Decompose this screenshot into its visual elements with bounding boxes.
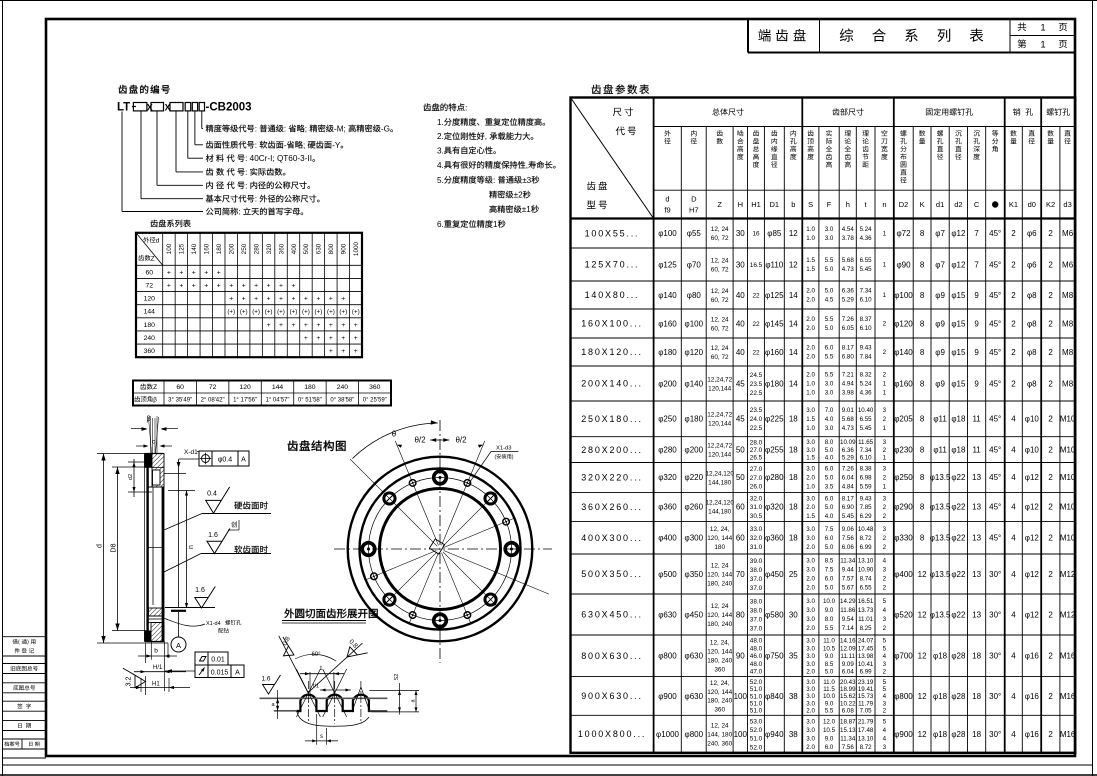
svg-text:2: 2 — [883, 513, 887, 520]
svg-text:40: 40 — [736, 291, 745, 300]
svg-text:180: 180 — [714, 544, 725, 551]
svg-text::: : — [238, 208, 240, 217]
svg-text:Z: Z — [151, 255, 155, 262]
svg-text:38.0: 38.0 — [750, 607, 763, 614]
svg-text:5.0: 5.0 — [825, 475, 834, 482]
svg-text:φ700: φ700 — [894, 652, 913, 661]
svg-text:2.0: 2.0 — [806, 625, 815, 632]
svg-text:5.45: 5.45 — [860, 425, 873, 432]
svg-text:M8: M8 — [1062, 291, 1074, 300]
svg-text:θ/2: θ/2 — [414, 436, 426, 445]
svg-text:11.11: 11.11 — [841, 653, 856, 660]
svg-text:144,180: 144,180 — [708, 479, 732, 486]
svg-text:1.5: 1.5 — [806, 416, 815, 423]
svg-text:φ22: φ22 — [951, 503, 966, 512]
svg-text:(: ( — [18, 640, 20, 646]
svg-text:1: 1 — [883, 292, 887, 299]
svg-text:21.79: 21.79 — [858, 718, 874, 725]
svg-text:φ450: φ450 — [685, 610, 704, 619]
svg-text:M6: M6 — [1062, 229, 1074, 238]
svg-text:D: D — [691, 195, 697, 204]
svg-text:(+): (+) — [339, 309, 347, 316]
svg-text:A: A — [241, 456, 246, 463]
svg-text:A: A — [235, 670, 240, 677]
svg-text::: : — [255, 141, 257, 150]
svg-text:120,144: 120,144 — [708, 385, 732, 392]
svg-text:3.0: 3.0 — [825, 226, 834, 233]
svg-text:1: 1 — [883, 454, 887, 461]
svg-text:+: + — [279, 296, 283, 303]
svg-text:θ: θ — [392, 429, 397, 438]
svg-text:+: + — [316, 335, 320, 342]
svg-text:630X450...: 630X450... — [581, 610, 643, 620]
svg-text:40: 40 — [736, 319, 745, 328]
svg-text:h: h — [846, 200, 850, 209]
svg-text:φ80: φ80 — [687, 291, 702, 300]
svg-text:11.5: 11.5 — [823, 686, 835, 693]
svg-text:120,144: 120,144 — [708, 451, 732, 458]
svg-text:9.0: 9.0 — [825, 607, 834, 614]
svg-text:+: + — [329, 348, 333, 355]
svg-text:38.0: 38.0 — [750, 598, 763, 605]
svg-text:3.0: 3.0 — [806, 686, 815, 693]
svg-text:φ12: φ12 — [951, 260, 966, 269]
svg-text:360: 360 — [144, 348, 156, 355]
svg-text:3.0: 3.0 — [806, 616, 815, 623]
svg-text:45°: 45° — [989, 415, 1001, 424]
svg-text:φ55: φ55 — [687, 229, 702, 238]
svg-text:24.0: 24.0 — [750, 416, 763, 423]
svg-text:900: 900 — [341, 243, 348, 254]
svg-text:12,24,72: 12,24,72 — [707, 442, 732, 449]
svg-text:3.0: 3.0 — [806, 439, 815, 446]
svg-text:144: 144 — [144, 309, 156, 316]
svg-text:630: 630 — [316, 243, 323, 254]
svg-text:φ225: φ225 — [765, 415, 784, 424]
svg-text:6.10: 6.10 — [860, 325, 873, 332]
svg-text:X1-d3: X1-d3 — [496, 446, 511, 452]
svg-text:18: 18 — [789, 445, 798, 454]
svg-text:2: 2 — [1048, 503, 1053, 512]
svg-text:2: 2 — [1011, 319, 1016, 328]
svg-text:3: 3 — [883, 526, 887, 533]
svg-text:: 40Cr-I; QT60-3-II: : 40Cr-I; QT60-3-II — [245, 154, 312, 163]
svg-text:10.22: 10.22 — [840, 700, 856, 707]
svg-text:,: , — [526, 161, 528, 170]
svg-text:2: 2 — [883, 416, 887, 423]
svg-text:10.40: 10.40 — [858, 407, 874, 414]
svg-text:φ160: φ160 — [765, 348, 784, 357]
svg-text:5.0: 5.0 — [825, 544, 834, 551]
svg-text:51.0: 51.0 — [750, 708, 763, 715]
svg-text:70: 70 — [736, 570, 745, 579]
svg-text:+: + — [167, 282, 171, 289]
svg-text:φ28: φ28 — [951, 730, 966, 739]
svg-text::: : — [245, 168, 247, 177]
svg-text:φ22: φ22 — [951, 570, 966, 579]
svg-text:φ16: φ16 — [1025, 730, 1040, 739]
svg-text:1: 1 — [883, 390, 887, 397]
svg-text:φ18: φ18 — [951, 415, 966, 424]
svg-text:120: 120 — [239, 384, 251, 391]
svg-text:+: + — [304, 322, 308, 329]
svg-text:31.0: 31.0 — [750, 504, 763, 511]
svg-text:22.5: 22.5 — [750, 425, 763, 432]
svg-text:30: 30 — [736, 229, 745, 238]
svg-text:100: 100 — [734, 692, 748, 701]
svg-text:8.17: 8.17 — [842, 496, 855, 503]
svg-text:11.86: 11.86 — [840, 607, 856, 614]
svg-text:3.98: 3.98 — [842, 390, 855, 397]
svg-text:;: ; — [303, 141, 305, 150]
svg-text:X: X — [165, 102, 171, 112]
svg-text:+: + — [229, 296, 233, 303]
svg-text:13: 13 — [972, 473, 981, 482]
svg-text:48.0: 48.0 — [750, 638, 763, 645]
svg-text:5.5: 5.5 — [825, 257, 834, 264]
svg-text:φ200: φ200 — [658, 379, 677, 388]
svg-text:8.74: 8.74 — [860, 576, 873, 583]
svg-text:4: 4 — [1011, 570, 1016, 579]
svg-text:120, 144: 120, 144 — [707, 649, 732, 656]
svg-text:φ12: φ12 — [951, 229, 966, 238]
svg-text:φ22: φ22 — [951, 610, 966, 619]
svg-text:φ840: φ840 — [765, 692, 784, 701]
svg-text:2.0: 2.0 — [806, 585, 815, 592]
svg-text:120, 144: 120, 144 — [707, 535, 732, 542]
svg-text:4: 4 — [883, 653, 887, 660]
svg-text:5.24: 5.24 — [860, 381, 873, 388]
svg-text:18: 18 — [789, 415, 798, 424]
svg-text:0° 25'59": 0° 25'59" — [363, 398, 387, 404]
svg-text:4.: 4. — [437, 161, 444, 170]
svg-text:180, 240: 180, 240 — [707, 658, 732, 665]
svg-text:φ320: φ320 — [658, 473, 677, 482]
svg-text:S2: S2 — [394, 674, 400, 681]
svg-text:(+): (+) — [277, 309, 285, 316]
svg-text:M16: M16 — [1060, 692, 1076, 701]
svg-text:5.0: 5.0 — [825, 325, 834, 332]
svg-text:φ13.5: φ13.5 — [930, 534, 951, 543]
svg-text:11.79: 11.79 — [858, 700, 874, 707]
svg-text:+: + — [292, 322, 296, 329]
svg-text:φ6: φ6 — [1027, 260, 1037, 269]
svg-text:7.14: 7.14 — [842, 625, 855, 632]
svg-text:+: + — [229, 282, 233, 289]
svg-text:51.0: 51.0 — [750, 686, 763, 693]
svg-text:7.34: 7.34 — [860, 447, 873, 454]
svg-text:45°: 45° — [989, 379, 1001, 388]
svg-text:3° 35'49": 3° 35'49" — [168, 398, 192, 404]
svg-text:C: C — [974, 200, 980, 209]
svg-text:4.36: 4.36 — [860, 390, 873, 397]
svg-text:20.43: 20.43 — [840, 679, 856, 686]
svg-text:4: 4 — [1011, 534, 1016, 543]
svg-text:10.48: 10.48 — [858, 526, 874, 533]
svg-text:2: 2 — [1048, 348, 1053, 357]
svg-text:240, 360: 240, 360 — [707, 740, 732, 747]
svg-text:320X220...: 320X220... — [581, 473, 643, 483]
svg-text:(: ( — [495, 454, 497, 460]
svg-text:3.0: 3.0 — [806, 598, 815, 605]
svg-text:+: + — [329, 296, 333, 303]
svg-text:100: 100 — [166, 243, 173, 254]
svg-text:φ7: φ7 — [935, 229, 945, 238]
svg-text:22.5: 22.5 — [750, 390, 763, 397]
svg-text:+: + — [217, 282, 221, 289]
svg-text:46.0: 46.0 — [750, 653, 763, 660]
svg-text:90: 90 — [736, 652, 745, 661]
svg-text:14: 14 — [789, 379, 798, 388]
svg-text:1: 1 — [883, 425, 887, 432]
svg-text:φ72: φ72 — [896, 229, 911, 238]
svg-text:3.0: 3.0 — [806, 407, 815, 414]
svg-text:Z: Z — [717, 200, 722, 209]
svg-text:25: 25 — [789, 570, 798, 579]
svg-text:50: 50 — [736, 445, 745, 454]
svg-text:+: + — [167, 269, 171, 276]
svg-text:4.73: 4.73 — [842, 425, 855, 432]
svg-text:6.99: 6.99 — [860, 669, 873, 676]
svg-text:φ900: φ900 — [894, 730, 913, 739]
svg-text:8: 8 — [920, 319, 925, 328]
svg-text:2: 2 — [1011, 260, 1016, 269]
svg-text:+: + — [316, 322, 320, 329]
svg-text:52.0: 52.0 — [750, 727, 763, 734]
svg-text:2.0: 2.0 — [806, 354, 815, 361]
svg-text:45: 45 — [736, 415, 745, 424]
svg-text:φ12: φ12 — [1025, 610, 1040, 619]
svg-text:50: 50 — [736, 473, 745, 482]
svg-text:200X140...: 200X140... — [581, 379, 643, 389]
svg-text:125: 125 — [179, 243, 186, 254]
svg-text:6.36: 6.36 — [842, 447, 855, 454]
svg-text:2.0: 2.0 — [806, 669, 815, 676]
svg-text:+: + — [179, 269, 183, 276]
svg-text:12, 24: 12, 24 — [711, 288, 729, 295]
svg-text:60: 60 — [736, 534, 745, 543]
svg-text:3.0: 3.0 — [806, 526, 815, 533]
svg-text:M10: M10 — [1060, 473, 1076, 482]
svg-text:2: 2 — [1011, 229, 1016, 238]
svg-text:5.29: 5.29 — [842, 297, 855, 304]
svg-text:5.0: 5.0 — [825, 504, 834, 511]
svg-text:(+): (+) — [302, 309, 310, 316]
svg-text:4: 4 — [883, 736, 887, 743]
svg-text:φ8: φ8 — [1027, 348, 1037, 357]
svg-text:18: 18 — [789, 534, 798, 543]
svg-text:4: 4 — [1011, 503, 1016, 512]
svg-text:D2: D2 — [899, 200, 909, 209]
svg-text:45°: 45° — [989, 260, 1001, 269]
svg-text:12: 12 — [918, 692, 927, 701]
svg-text:5.0: 5.0 — [825, 669, 834, 676]
svg-text:6.04: 6.04 — [842, 475, 855, 482]
svg-text:(+): (+) — [352, 309, 360, 316]
svg-text:12,24,120: 12,24,120 — [705, 500, 734, 507]
svg-text:8: 8 — [920, 260, 925, 269]
svg-text:4.0: 4.0 — [825, 416, 834, 423]
svg-text:72: 72 — [209, 384, 217, 391]
svg-text:3.0: 3.0 — [806, 447, 815, 454]
svg-text:5: 5 — [883, 718, 887, 725]
svg-text:2: 2 — [883, 576, 887, 583]
svg-text:3.0: 3.0 — [806, 558, 815, 565]
svg-text:3.: 3. — [437, 146, 444, 155]
svg-text:3.0: 3.0 — [825, 235, 834, 242]
svg-text:+: + — [354, 335, 358, 342]
svg-text:14: 14 — [789, 319, 798, 328]
svg-text:θ/2: θ/2 — [455, 436, 467, 445]
svg-text:6.55: 6.55 — [860, 585, 873, 592]
svg-text:45°: 45° — [989, 534, 1001, 543]
svg-text:360: 360 — [714, 667, 725, 674]
svg-text:6.08: 6.08 — [842, 708, 855, 715]
svg-text:2: 2 — [1048, 652, 1053, 661]
svg-text:400X300...: 400X300... — [581, 533, 643, 543]
svg-text:22: 22 — [752, 349, 760, 356]
svg-text:5.45: 5.45 — [860, 266, 873, 273]
svg-text:250X180...: 250X180... — [581, 414, 643, 424]
svg-text:24.07: 24.07 — [858, 638, 874, 645]
svg-text:9.43: 9.43 — [860, 496, 873, 503]
svg-text:360: 360 — [369, 384, 381, 391]
svg-text:9: 9 — [974, 379, 979, 388]
svg-text:7.84: 7.84 — [860, 354, 873, 361]
svg-text:φ180: φ180 — [685, 415, 704, 424]
svg-text:φ800: φ800 — [685, 730, 704, 739]
svg-text:φ180: φ180 — [765, 379, 784, 388]
svg-text:φ250: φ250 — [894, 473, 913, 482]
svg-text:30°: 30° — [989, 730, 1001, 739]
svg-text:11.01: 11.01 — [858, 616, 874, 623]
svg-text:φ140: φ140 — [658, 291, 677, 300]
svg-text:β: β — [153, 397, 157, 404]
svg-text:240: 240 — [337, 384, 349, 391]
svg-text:φ750: φ750 — [765, 652, 784, 661]
svg-text:9.0: 9.0 — [825, 653, 834, 660]
svg-text:1: 1 — [883, 484, 887, 491]
svg-text:160X100...: 160X100... — [581, 319, 643, 329]
svg-text:X-d1: X-d1 — [184, 449, 198, 456]
svg-text:280X200...: 280X200... — [581, 445, 643, 455]
svg-text:1: 1 — [1040, 23, 1045, 34]
svg-text:4.0: 4.0 — [825, 513, 834, 520]
svg-text:+: + — [279, 282, 283, 289]
svg-text:n: n — [882, 200, 886, 209]
svg-text:8: 8 — [920, 291, 925, 300]
svg-text:6.10: 6.10 — [860, 454, 873, 461]
svg-text:φ360: φ360 — [765, 534, 784, 543]
svg-text:φ450: φ450 — [765, 570, 784, 579]
svg-text:3: 3 — [883, 407, 887, 414]
svg-text:45: 45 — [736, 379, 745, 388]
svg-text:F: F — [827, 200, 832, 209]
svg-text:45°: 45° — [989, 348, 1001, 357]
svg-text:2: 2 — [1048, 229, 1053, 238]
svg-text:φ145: φ145 — [765, 319, 784, 328]
svg-text:φ1000: φ1000 — [656, 730, 680, 739]
svg-text:+: + — [329, 335, 333, 342]
svg-text:9.0: 9.0 — [825, 736, 834, 743]
svg-text:+: + — [304, 296, 308, 303]
svg-text:18: 18 — [789, 503, 798, 512]
svg-text:): ) — [27, 640, 29, 646]
svg-text:27.0: 27.0 — [750, 466, 763, 473]
svg-text:2.0: 2.0 — [806, 744, 815, 751]
svg-text:b: b — [791, 200, 795, 209]
svg-text:t: t — [320, 665, 322, 672]
svg-text:5.5: 5.5 — [825, 625, 834, 632]
svg-text:φ9: φ9 — [935, 291, 945, 300]
svg-text:8.0: 8.0 — [825, 439, 834, 446]
svg-text:7: 7 — [974, 260, 979, 269]
svg-text:M10: M10 — [1060, 534, 1076, 543]
svg-text:12.09: 12.09 — [840, 645, 856, 652]
svg-text:φ13.5: φ13.5 — [930, 473, 951, 482]
svg-text:0.01: 0.01 — [211, 657, 225, 664]
svg-text:18: 18 — [972, 730, 981, 739]
svg-text:360: 360 — [278, 243, 285, 254]
svg-text:φ16: φ16 — [1025, 652, 1040, 661]
svg-text:360X260...: 360X260... — [581, 502, 643, 512]
svg-text:5: 5 — [883, 645, 887, 652]
svg-text:φ300: φ300 — [685, 534, 704, 543]
svg-text:23.5: 23.5 — [750, 381, 763, 388]
svg-text:9: 9 — [974, 291, 979, 300]
svg-text:6.98: 6.98 — [860, 475, 873, 482]
svg-text:30°: 30° — [989, 570, 1001, 579]
svg-text:60, 72: 60, 72 — [711, 266, 729, 273]
svg-text:10.41: 10.41 — [858, 661, 874, 668]
svg-text:2: 2 — [1011, 348, 1016, 357]
svg-text:12, 24,: 12, 24, — [710, 680, 730, 687]
svg-text:φ900: φ900 — [658, 692, 677, 701]
svg-text:φ350: φ350 — [685, 570, 704, 579]
svg-text:φ630: φ630 — [685, 652, 704, 661]
svg-text:4.0: 4.0 — [825, 454, 834, 461]
svg-text:φ12: φ12 — [1025, 570, 1040, 579]
svg-text:6.: 6. — [437, 220, 444, 229]
svg-text:8.5: 8.5 — [825, 558, 834, 565]
svg-text:100: 100 — [734, 730, 748, 739]
svg-text:7.0: 7.0 — [825, 407, 834, 414]
svg-text:7: 7 — [974, 229, 979, 238]
svg-text:2.0: 2.0 — [806, 576, 815, 583]
svg-text:7.56: 7.56 — [842, 535, 855, 542]
svg-text:M10: M10 — [1060, 445, 1076, 454]
svg-text:φ9: φ9 — [935, 319, 945, 328]
svg-text:160: 160 — [204, 243, 211, 254]
svg-text:φ16: φ16 — [1025, 692, 1040, 701]
svg-text:φ100: φ100 — [894, 291, 913, 300]
svg-text:φ0.4: φ0.4 — [218, 456, 232, 463]
svg-text:2° 08'42": 2° 08'42" — [201, 398, 225, 404]
svg-text:+: + — [279, 322, 283, 329]
svg-text:1° 04'57": 1° 04'57" — [265, 398, 289, 404]
svg-text:8.72: 8.72 — [860, 535, 873, 542]
svg-text:60: 60 — [176, 384, 184, 391]
svg-text:200: 200 — [229, 243, 236, 254]
svg-text:47.0: 47.0 — [750, 669, 763, 676]
svg-text:60°: 60° — [311, 652, 321, 658]
svg-text:5.67: 5.67 — [842, 585, 855, 592]
svg-text:2.0: 2.0 — [806, 316, 815, 323]
svg-text:φ15: φ15 — [951, 379, 966, 388]
svg-text::: : — [255, 125, 257, 134]
svg-text:2: 2 — [883, 585, 887, 592]
svg-text:2: 2 — [883, 349, 887, 356]
